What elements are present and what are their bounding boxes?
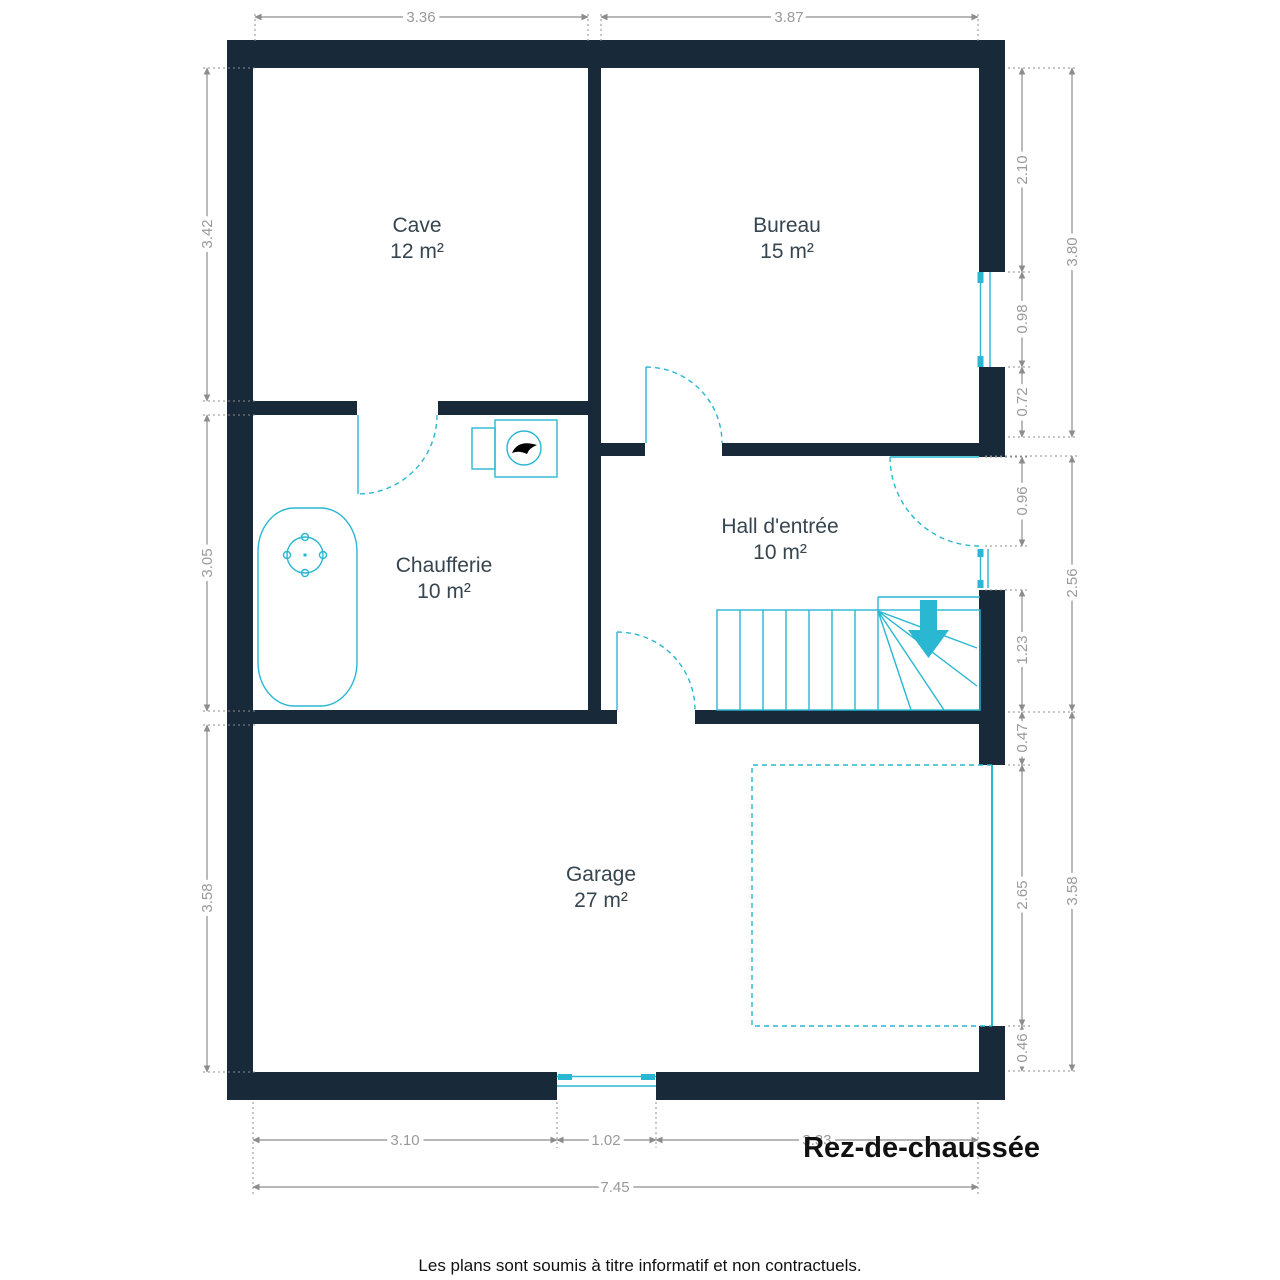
window-bureau-icon	[978, 272, 991, 367]
dim-right-210: 2.10	[1014, 155, 1031, 184]
room-area-garage: 27 m²	[574, 889, 628, 912]
floor-plan-canvas: 3.36 3.87 3.42 3.05 3.58 2.10 0.98 0.72 …	[0, 0, 1280, 1280]
dim-right-096: 0.96	[1014, 486, 1031, 515]
walls	[227, 40, 1005, 1100]
window-garage-icon	[557, 1074, 656, 1086]
dim-right-047: 0.47	[1014, 723, 1031, 752]
room-label-hall: Hall d'entrée	[721, 515, 838, 538]
room-area-cave: 12 m²	[390, 240, 444, 263]
door-bureau-icon	[646, 367, 722, 443]
dim-right-123: 1.23	[1014, 635, 1031, 664]
dim-right-072: 0.72	[1014, 387, 1031, 416]
window-hall-icon	[978, 549, 989, 588]
dimension-lines	[207, 17, 1072, 1187]
dim-right-098: 0.98	[1014, 304, 1031, 333]
room-area-bureau: 15 m²	[760, 240, 814, 263]
room-label-chaufferie: Chaufferie	[396, 554, 493, 577]
dimension-extension-lines	[203, 14, 1078, 1195]
dim-right-265: 2.65	[1014, 880, 1031, 909]
dim-right-outer-256: 2.56	[1064, 568, 1081, 597]
dim-top-right: 3.87	[774, 9, 803, 26]
dim-left-cave: 3.42	[199, 219, 216, 248]
dim-bottom-total: 7.45	[600, 1179, 629, 1196]
water-tank-icon	[258, 508, 357, 706]
dimension-labels: 3.36 3.87 3.42 3.05 3.58 2.10 0.98 0.72 …	[199, 9, 1081, 1196]
dim-right-outer-358: 3.58	[1064, 876, 1081, 905]
floor-title: Rez-de-chaussée	[803, 1132, 1040, 1164]
room-label-cave: Cave	[392, 214, 441, 237]
room-label-garage: Garage	[566, 863, 636, 886]
dim-right-046: 0.46	[1014, 1033, 1031, 1062]
door-cave-chaufferie-icon	[358, 415, 437, 494]
floor-plan-page: 3.36 3.87 3.42 3.05 3.58 2.10 0.98 0.72 …	[0, 0, 1280, 1280]
room-area-chaufferie: 10 m²	[417, 580, 471, 603]
dim-left-chaufferie: 3.05	[199, 548, 216, 577]
boiler-icon	[472, 420, 557, 477]
stairs-direction-arrow-icon	[908, 600, 949, 658]
dim-left-garage: 3.58	[199, 883, 216, 912]
garage-clearance-outline	[752, 765, 992, 1026]
room-labels: Cave 12 m² Bureau 15 m² Chaufferie 10 m²…	[390, 214, 838, 912]
room-label-bureau: Bureau	[753, 214, 821, 237]
door-hall-garage-icon	[617, 632, 695, 710]
door-entry-icon	[890, 457, 979, 546]
flame-icon	[512, 443, 537, 454]
room-area-hall: 10 m²	[753, 541, 807, 564]
disclaimer-text: Les plans sont soumis à titre informatif…	[418, 1256, 861, 1275]
dim-bottom-102: 1.02	[591, 1132, 620, 1149]
stairs-icon	[717, 597, 980, 710]
dim-top-left: 3.36	[406, 9, 435, 26]
dim-right-outer-380: 3.80	[1064, 237, 1081, 266]
dim-bottom-310: 3.10	[390, 1132, 419, 1149]
